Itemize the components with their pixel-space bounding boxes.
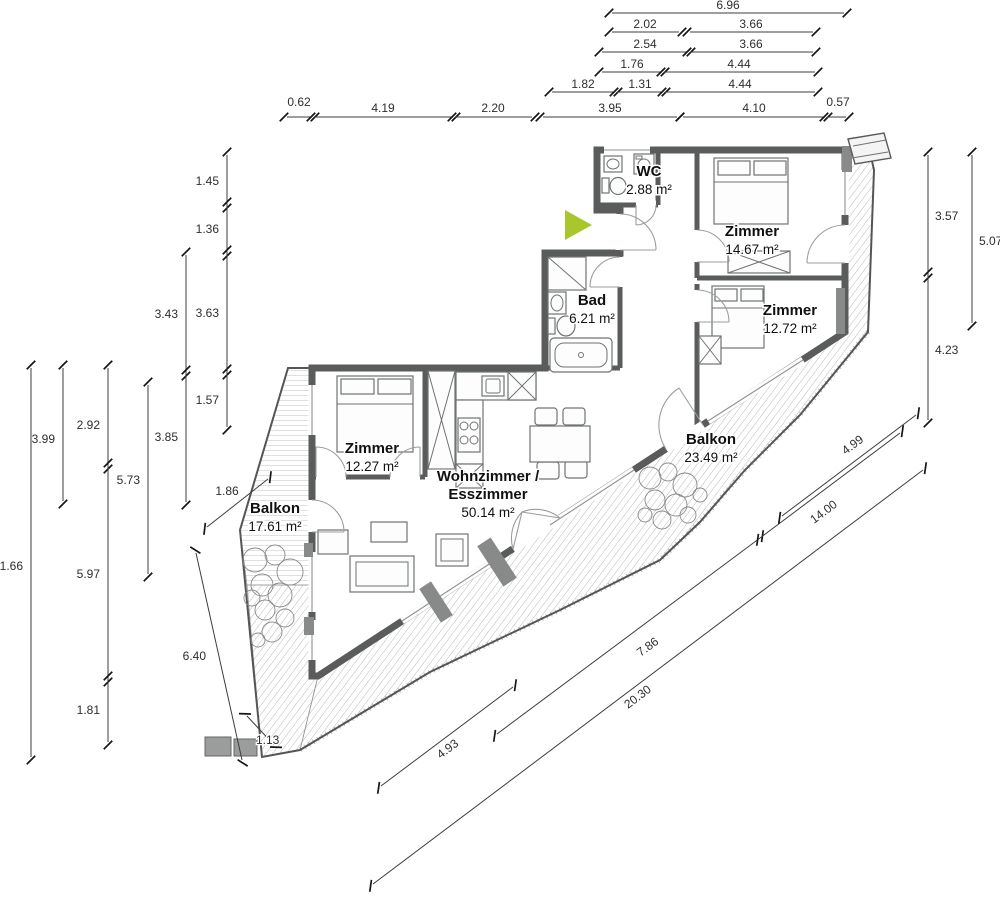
room-name: Zimmer (763, 302, 817, 319)
room-area: 17.61 m² (248, 519, 302, 534)
closet-zimmer-2 (699, 336, 721, 364)
dimension-label: 1.13 (256, 733, 280, 747)
dimension-label: 2.92 (77, 418, 101, 432)
dimension-label: 3.85 (155, 430, 179, 444)
dimension-label: 1.81 (77, 703, 101, 717)
dimension-label: 3.43 (155, 307, 179, 321)
dimension-label: 5.73 (117, 473, 141, 487)
room-name: Esszimmer (448, 486, 527, 503)
dimension-label: 4.44 (728, 77, 752, 91)
dimension-label: 1.31 (628, 77, 652, 91)
room-area: 12.27 m² (345, 459, 399, 474)
room-name: Zimmer (345, 440, 399, 457)
dimension-label: 4.44 (727, 57, 751, 71)
room-name: Balkon (686, 431, 736, 448)
floor-plan-canvas: WC2.88 m²Zimmer14.67 m²Zimmer12.72 m²Bad… (0, 0, 1000, 901)
dimension-label: 5.07 (979, 234, 1000, 248)
room-name: Wohnzimmer / (437, 468, 540, 485)
floor-plan-drawing: WC2.88 m²Zimmer14.67 m²Zimmer12.72 m²Bad… (0, 0, 1000, 901)
dimension-label: 2.54 (633, 37, 657, 51)
dimension-label: 3.66 (739, 17, 763, 31)
dimension-label: 4.10 (742, 101, 766, 115)
room-name: Balkon (250, 500, 300, 517)
room-area: 2.88 m² (626, 182, 672, 197)
roof-access-box (848, 133, 891, 164)
dimension-label: 3.99 (32, 432, 56, 446)
dimension-label: 11.66 (0, 559, 23, 573)
dimension-label: 1.86 (215, 484, 239, 498)
room-area: 23.49 m² (684, 450, 738, 465)
wardrobe-tall (428, 371, 455, 469)
room-name: WC (637, 163, 662, 180)
dimension-label: 1.45 (196, 174, 220, 188)
dimension-label: 6.96 (716, 0, 740, 12)
dimension-label: 5.97 (77, 567, 101, 581)
dimension-label: 6.40 (183, 649, 207, 663)
dimension-label: 0.57 (826, 95, 850, 109)
room-area: 14.67 m² (725, 242, 779, 257)
dimension-label: 2.20 (481, 101, 505, 115)
dimension-label: 3.63 (196, 306, 220, 320)
dimension-label: 1.76 (620, 57, 644, 71)
dimension-label: 3.95 (598, 101, 622, 115)
room-area: 6.21 m² (569, 311, 615, 326)
room-area: 50.14 m² (461, 505, 515, 520)
dimension-label: 3.57 (935, 209, 959, 223)
dimension-label: 3.66 (739, 37, 763, 51)
dimension-label: 1.36 (196, 222, 220, 236)
planter-box (205, 737, 231, 756)
bed-zimmer-1 (714, 158, 788, 224)
dimension-label: 1.82 (571, 77, 595, 91)
room-area: 12.72 m² (763, 321, 817, 336)
dimension-label: 4.19 (371, 101, 395, 115)
room-name: Bad (578, 292, 606, 309)
dimension-label: 2.02 (633, 17, 657, 31)
room-name: Zimmer (725, 223, 779, 240)
dimension-label: 1.57 (196, 393, 220, 407)
dimension-label: 4.23 (935, 343, 959, 357)
dimension-label: 0.62 (287, 95, 311, 109)
